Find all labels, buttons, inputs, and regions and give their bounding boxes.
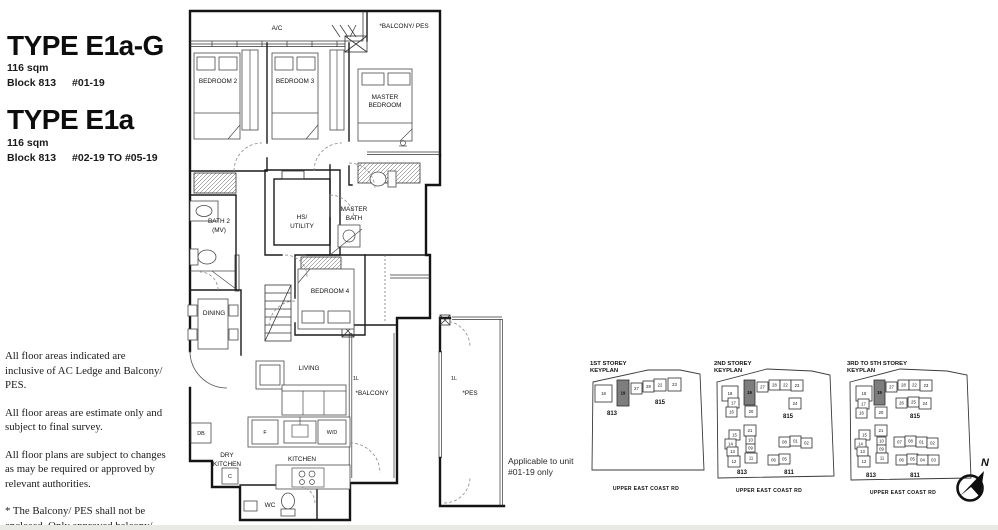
pes-note-line2: #01-19 only xyxy=(508,467,588,478)
bed-bedroom4 xyxy=(298,269,354,329)
label-dry-kitchen-1: DRY xyxy=(220,452,234,459)
keyplan-block-label-811: 811 xyxy=(784,470,794,476)
keyplan-block-label-813: 813 xyxy=(737,470,748,476)
keyplan-unit-label-13: 13 xyxy=(860,449,865,454)
label-hs-utility-1: HS/ xyxy=(297,214,308,221)
keyplan-title-line1: 3RD TO 5TH STOREY xyxy=(847,361,907,367)
keyplan-unit-label-05: 05 xyxy=(910,457,915,462)
label-master-bedroom-1: MASTER xyxy=(372,94,399,101)
keyplan-unit-label-01: 01 xyxy=(919,440,924,445)
label-db: DB xyxy=(197,431,205,437)
floorplan-drawing: A/C *BALCONY/ PES BEDROOM 2 BEDROOM 3 MA… xyxy=(182,3,562,528)
keyplan-unit-label-08: 08 xyxy=(782,440,787,445)
keyplan-unit-label-20: 20 xyxy=(879,410,884,415)
keyplan-unit-label-06: 06 xyxy=(771,458,776,463)
page-edge-strip xyxy=(0,525,998,530)
keyplan-title-line2: KEYPLAN xyxy=(714,368,742,374)
label-kitchen: KITCHEN xyxy=(288,456,316,463)
label-hs-utility-2: UTILITY xyxy=(290,223,315,230)
keyplan-unit-label-28: 28 xyxy=(901,383,906,388)
keyplan-unit-label-05: 05 xyxy=(782,457,787,462)
keyplan-unit-label-19: 19 xyxy=(621,391,626,396)
keyplan-unit-label-11: 11 xyxy=(880,456,885,461)
ladder-shaft xyxy=(265,285,291,341)
block-value: Block 813 xyxy=(7,152,56,164)
keyplan-road-label: UPPER EAST COAST RD xyxy=(736,488,802,494)
label-bedroom2: BEDROOM 2 xyxy=(199,78,238,85)
label-dining: DINING xyxy=(203,310,225,317)
keyplan-unit-label-14: 14 xyxy=(858,442,863,447)
label-dry-kitchen-2: KITCHEN xyxy=(213,461,241,468)
keyplan-unit-label-28: 28 xyxy=(646,384,651,389)
keyplan-unit-label-14: 14 xyxy=(728,442,733,447)
keyplan-unit-label-10: 10 xyxy=(748,438,753,443)
label-living: LIVING xyxy=(299,365,320,372)
keyplan-title-line1: 2ND STOREY xyxy=(714,361,752,367)
keyplan-block-label-813: 813 xyxy=(607,411,618,417)
keyplan-unit-label-16: 16 xyxy=(729,410,734,415)
keyplan-title-line1: 1ST STOREY xyxy=(590,361,627,367)
label-master-bedroom-2: BEDROOM xyxy=(368,102,401,109)
north-compass: N xyxy=(948,452,998,514)
keyplan-unit-label-24: 24 xyxy=(793,401,798,406)
keyplan-unit-label-04: 04 xyxy=(920,458,925,463)
label-balcony-pes: *BALCONY/ PES xyxy=(379,23,428,30)
label-pes: *PES xyxy=(462,390,477,397)
stack-value: #02-19 TO #05-19 xyxy=(72,152,158,164)
keyplan-unit-label-23: 23 xyxy=(924,383,929,388)
unit-type-a-area: 116 sqm xyxy=(7,137,48,149)
keyplan-unit-label-22: 22 xyxy=(658,383,663,388)
keyplan-unit-label-18: 18 xyxy=(601,391,606,396)
label-ac: A/C xyxy=(272,25,283,32)
hs-utility-store xyxy=(274,171,330,245)
keyplan-unit-label-21: 21 xyxy=(879,428,884,433)
keyplan-block-label-815: 815 xyxy=(783,414,794,420)
keyplan-unit-label-27: 27 xyxy=(760,385,765,390)
keyplan-road-label: UPPER EAST COAST RD xyxy=(613,486,679,492)
keyplan-unit-label-22: 22 xyxy=(783,383,788,388)
keyplan-block-label-815: 815 xyxy=(910,414,921,420)
keyplan-unit-label-23: 23 xyxy=(795,383,800,388)
note-subject-change: All floor plans are subject to changes a… xyxy=(5,448,167,492)
pes-note-line1: Applicable to unit xyxy=(508,456,588,467)
compass-north-label: N xyxy=(981,457,990,469)
keyplan-unit-label-06: 06 xyxy=(899,458,904,463)
label-cabinet: C xyxy=(228,474,232,480)
label-master-bath-2: BATH xyxy=(346,215,363,222)
label-bath2-1: BATH 2 xyxy=(208,218,230,225)
bath2-fixtures xyxy=(190,201,239,291)
pes-enclosure xyxy=(439,315,504,506)
keyplan-unit-label-18: 18 xyxy=(862,391,867,396)
unit-type-title-a: TYPE E1a xyxy=(7,104,134,136)
disclaimer-notes: All floor areas indicated are inclusive … xyxy=(5,349,167,530)
label-bedroom4: BEDROOM 4 xyxy=(311,288,350,295)
keyplan-title-line2: KEYPLAN xyxy=(590,368,618,374)
keyplan-1st-storey: 1ST STOREYKEYPLAN181927282223813815UPPER… xyxy=(588,358,708,498)
floorplan-brochure-page: TYPE E1a-G 116 sqm Block 813#01-19 TYPE … xyxy=(0,0,998,530)
keyplan-unit-label-28: 28 xyxy=(772,383,777,388)
label-bedroom3: BEDROOM 3 xyxy=(276,78,315,85)
kitchen-fixtures xyxy=(191,417,350,489)
keyplan-unit-label-22: 22 xyxy=(912,383,917,388)
keyplan-unit-label-20: 20 xyxy=(749,409,754,414)
keyplan-unit-label-27: 27 xyxy=(889,385,894,390)
keyplan-unit-label-23: 23 xyxy=(672,382,677,387)
bed-bedroom3 xyxy=(272,53,318,139)
keyplan-unit-label-03: 03 xyxy=(931,458,936,463)
label-light-pes: 1L xyxy=(451,376,457,382)
unit-type-a-block: Block 813#02-19 TO #05-19 xyxy=(7,152,158,164)
ac-ledge-xbox xyxy=(345,36,367,52)
keyplan-block-label-811: 811 xyxy=(910,473,920,479)
keyplan-2nd-storey: 2ND STOREYKEYPLAN18192728222317162024211… xyxy=(712,358,837,503)
unit-type-g-area: 116 sqm xyxy=(7,62,48,74)
keyplan-unit-label-08: 08 xyxy=(908,439,913,444)
keyplan-unit-label-21: 21 xyxy=(748,428,753,433)
keyplan-unit-label-12: 12 xyxy=(862,459,867,464)
keyplan-block-label-815: 815 xyxy=(655,400,666,406)
keyplan-unit-label-19: 19 xyxy=(877,390,882,395)
block-value: Block 813 xyxy=(7,77,56,89)
keyplan-unit-label-02: 02 xyxy=(930,441,935,446)
keyplan-block-label-813: 813 xyxy=(866,473,877,479)
keyplan-unit-label-15: 15 xyxy=(732,433,737,438)
unit-type-title-g: TYPE E1a-G xyxy=(7,30,164,62)
area-value: 116 sqm xyxy=(7,137,48,149)
keyplan-unit-label-01: 01 xyxy=(793,439,798,444)
label-light-balcony: 1L xyxy=(353,376,359,382)
pes-applicability-note: Applicable to unit #01-19 only xyxy=(508,456,588,478)
keyplan-unit-label-27: 27 xyxy=(634,386,639,391)
label-master-bath-1: MASTER xyxy=(341,206,368,213)
keyplan-title-line2: KEYPLAN xyxy=(847,368,875,374)
keyplan-unit-label-25: 25 xyxy=(911,400,916,405)
keyplan-unit-label-17: 17 xyxy=(861,402,866,407)
keyplan-road-label: UPPER EAST COAST RD xyxy=(870,490,936,496)
label-washer-dryer: W/D xyxy=(327,430,338,436)
keyplan-unit-label-18: 18 xyxy=(728,391,733,396)
keyplan-unit-label-10: 10 xyxy=(879,439,884,444)
keyplan-unit-label-13: 13 xyxy=(730,449,735,454)
keyplan-unit-label-16: 16 xyxy=(859,411,864,416)
keyplan-unit-label-24: 24 xyxy=(923,401,928,406)
label-balcony: *BALCONY xyxy=(355,390,389,397)
keyplan-unit-label-15: 15 xyxy=(862,433,867,438)
dining-set xyxy=(188,299,238,349)
label-bath2-2: (MV) xyxy=(212,227,226,234)
unit-type-g-block: Block 813#01-19 xyxy=(7,77,105,89)
bed-bedroom2 xyxy=(194,53,240,139)
keyplan-unit-label-19: 19 xyxy=(747,390,752,395)
keyplan-unit-label-09: 09 xyxy=(879,447,884,452)
keyplan-unit-label-09: 09 xyxy=(748,446,753,451)
stack-value: #01-19 xyxy=(72,77,105,89)
keyplan-unit-label-02: 02 xyxy=(804,441,809,446)
area-value: 116 sqm xyxy=(7,62,48,74)
keyplan-unit-label-12: 12 xyxy=(732,459,737,464)
label-wc: WC xyxy=(265,502,276,509)
keyplan-unit-label-17: 17 xyxy=(731,401,736,406)
note-areas-inclusive: All floor areas indicated are inclusive … xyxy=(5,349,167,393)
keyplan-unit-label-11: 11 xyxy=(749,456,754,461)
keyplan-unit-label-07: 07 xyxy=(897,440,902,445)
note-estimate: All floor areas are estimate only and su… xyxy=(5,406,167,435)
keyplan-unit-label-26: 26 xyxy=(899,401,904,406)
